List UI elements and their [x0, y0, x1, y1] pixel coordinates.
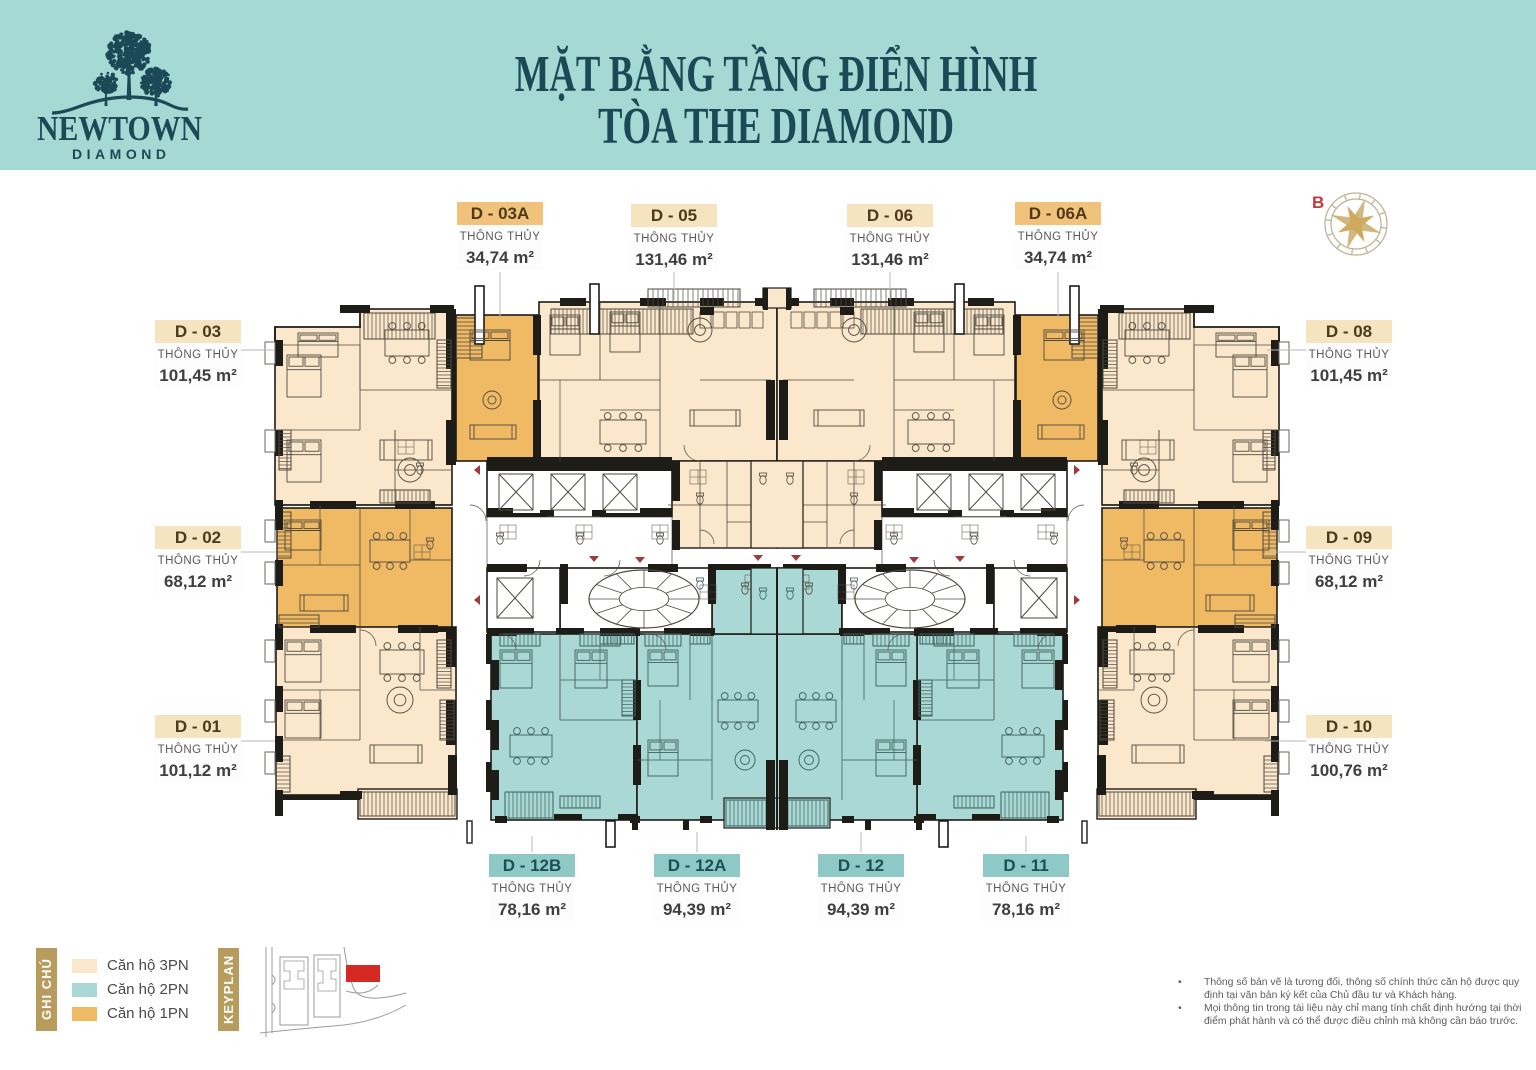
svg-text:B: B [1312, 193, 1324, 212]
